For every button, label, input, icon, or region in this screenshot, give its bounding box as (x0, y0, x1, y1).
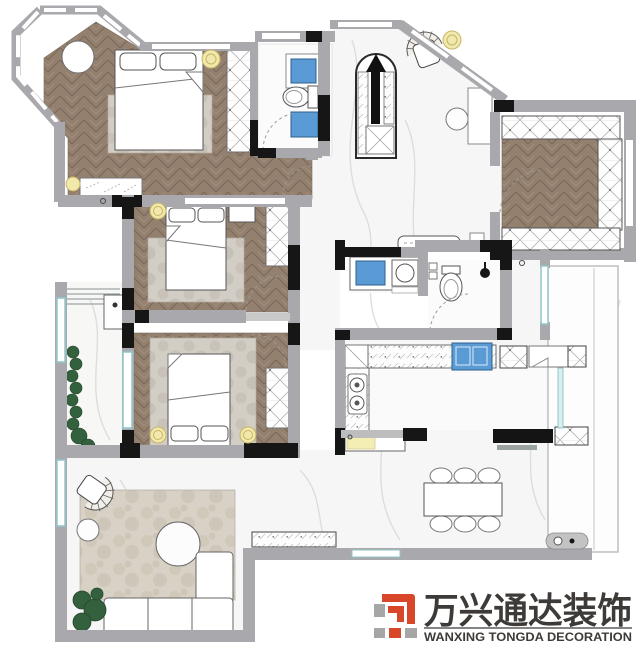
shower-head (480, 268, 490, 278)
hall-balcony-window (541, 266, 548, 324)
washing-machine (356, 261, 385, 285)
living-window (57, 460, 65, 526)
entry-stool (446, 108, 468, 130)
dining-set (424, 468, 502, 532)
master-bed (115, 50, 203, 150)
bath1-sink (291, 59, 316, 83)
tv-console (497, 445, 537, 450)
logo-chinese-text: 万兴通达装饰 (424, 590, 632, 631)
dining-corner-curve (546, 533, 588, 549)
entry-arch-cabinet (356, 54, 396, 158)
floorplan-svg: 万兴通达装饰 WANXING TONGDA DECORATION (0, 0, 640, 647)
balcony-window (57, 298, 65, 362)
bedroom2-wardrobe (266, 202, 289, 266)
dining-balcony-glass (558, 368, 563, 428)
master-round-table (62, 41, 94, 73)
master-wardrobe (227, 47, 251, 152)
laundry (350, 257, 422, 293)
entry-side-cabinet (468, 88, 492, 144)
bedroom3-balcony-window (123, 352, 132, 428)
closet-floor (502, 138, 600, 230)
bedroom3-wardrobe (266, 368, 290, 428)
bedroom3-bed (168, 354, 230, 446)
fridge (500, 346, 527, 368)
logo-mark (374, 594, 417, 638)
living-sill-cabinet (252, 532, 336, 547)
side-table (77, 519, 99, 541)
coffee-table (156, 522, 200, 566)
floorplan-image: 万兴通达装饰 WANXING TONGDA DECORATION (0, 0, 640, 647)
brand-logo: 万兴通达装饰 WANXING TONGDA DECORATION (374, 590, 632, 644)
dining-table (424, 483, 502, 516)
logo-english-text: WANXING TONGDA DECORATION (424, 630, 632, 644)
